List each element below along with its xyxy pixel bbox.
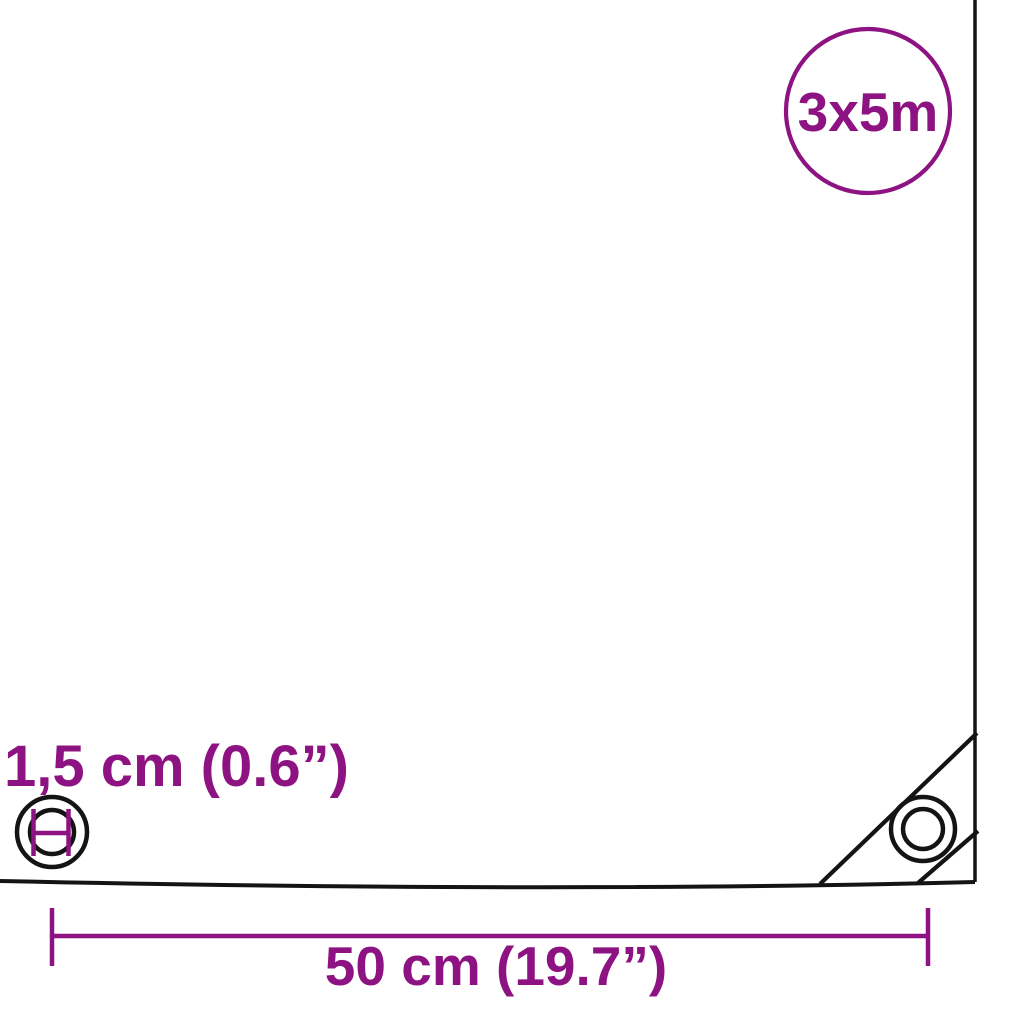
corner-eyelet-outer-ring (891, 797, 955, 861)
size-badge: 3x5m (786, 29, 950, 193)
corner-reinforcement (820, 733, 978, 884)
tarp-bottom-edge (0, 881, 975, 887)
corner-eyelet-inner-ring (903, 809, 943, 849)
corner-eyelet-icon (891, 797, 955, 861)
eyelet-spacing-label: 50 cm (19.7”) (325, 935, 667, 997)
eyelet-diameter-label: 1,5 cm (0.6”) (4, 734, 349, 799)
diagram-svg: 3x5m 1,5 cm (0.6”) 50 cm (19.7”) (0, 0, 1024, 1024)
size-badge-label: 3x5m (798, 81, 939, 143)
left-eyelet-icon (17, 797, 87, 867)
product-diagram: 3x5m 1,5 cm (0.6”) 50 cm (19.7”) (0, 0, 1024, 1024)
corner-fold-line (918, 831, 978, 883)
